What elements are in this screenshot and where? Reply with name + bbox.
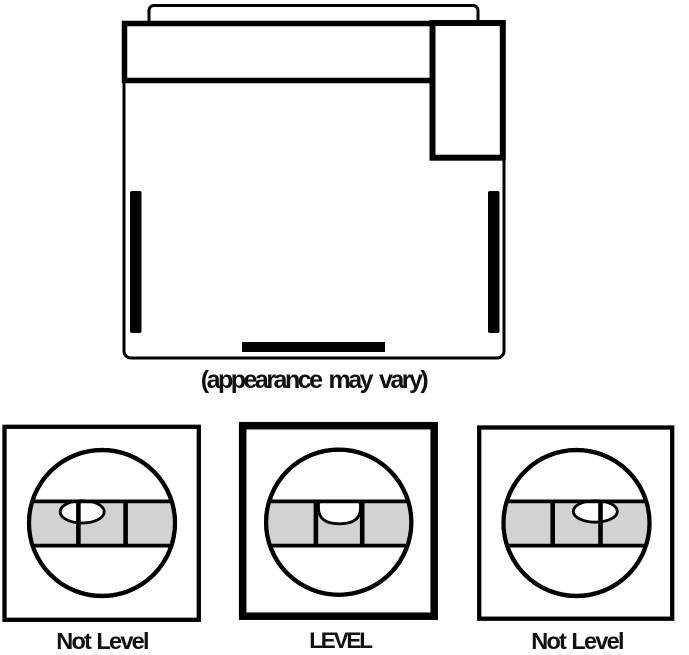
svg-text:(appearance may vary): (appearance may vary) [201, 366, 429, 394]
svg-text:Not Level: Not Level [531, 628, 623, 654]
svg-text:Not Level: Not Level [56, 628, 148, 654]
svg-text:LEVEL: LEVEL [309, 628, 373, 653]
